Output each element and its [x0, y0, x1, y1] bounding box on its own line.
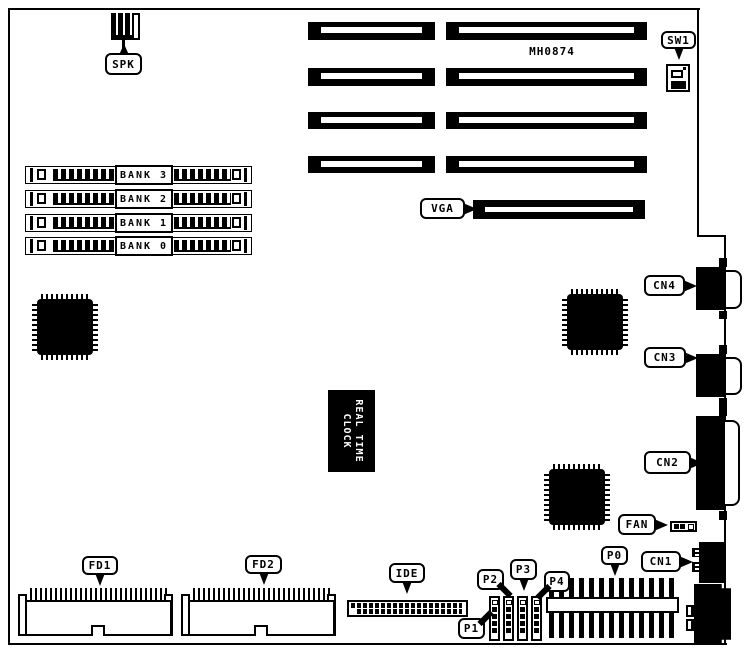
cn1-pin [692, 562, 699, 572]
jumper-cap [520, 621, 525, 626]
socket-latch-icon [37, 169, 46, 180]
bank-label: BANK 0 [115, 236, 173, 256]
bottom-edge-connector [694, 584, 731, 644]
vga-callout-label: VGA [431, 202, 454, 215]
spk-callout-label: SPK [112, 58, 135, 71]
ide-callout: IDE [389, 563, 425, 583]
speaker-header-pin [125, 13, 130, 35]
jumper-cap [492, 621, 497, 626]
p2-callout-label: P2 [483, 573, 498, 586]
motherboard-diagram: SPK MH0874 SW1 VGA BANK 3 BANK 2 [0, 0, 744, 651]
fan-pin [674, 524, 679, 529]
socket-pins [174, 169, 231, 181]
cn2-callout: CN2 [644, 451, 691, 474]
socket-latch-icon [37, 193, 46, 204]
jumper-open [492, 600, 498, 605]
edge-tab [719, 407, 727, 416]
fan-callout: FAN [618, 514, 656, 535]
rtc-line2: CLOCK [340, 390, 352, 472]
expansion-slot [446, 112, 647, 129]
fan-pin-open [688, 524, 694, 530]
fd1-callout-label: FD1 [89, 559, 112, 572]
ide-pin1-marker [351, 609, 355, 614]
socket-end-bar [30, 239, 33, 253]
expansion-slot [308, 22, 435, 40]
chip-body [549, 469, 605, 525]
ide-pin-row [351, 603, 462, 608]
socket-pins [53, 217, 114, 229]
connector-tab [686, 619, 697, 631]
sw1-switch-upper [671, 70, 683, 78]
fd2-callout: FD2 [245, 555, 282, 574]
ide-header [347, 600, 468, 617]
connector-tab [686, 605, 697, 617]
real-time-clock-block: REAL TIME CLOCK [328, 390, 375, 472]
simm-socket-bank2: BANK 2 [25, 190, 252, 208]
jumper-cap [534, 621, 539, 626]
simm-socket-bank0: BANK 0 [25, 237, 252, 255]
socket-end-bar [30, 192, 33, 206]
p0-callout: P0 [601, 546, 628, 565]
ide-pin-row [351, 609, 462, 614]
socket-pins [53, 240, 114, 252]
rtc-line1: REAL TIME [352, 390, 364, 472]
p0-power-connector-body [546, 597, 679, 613]
socket-pins [174, 193, 231, 205]
socket-pins [174, 240, 231, 252]
edge-tab [719, 398, 727, 407]
sw1-dip-switch-icon [666, 64, 690, 92]
p4-callout: P4 [544, 571, 570, 592]
simm-socket-bank3: BANK 3 [25, 166, 252, 184]
socket-end-bar [244, 168, 247, 182]
chip-body [37, 299, 93, 355]
jumper-open [534, 600, 540, 605]
p2-callout: P2 [477, 569, 504, 590]
socket-end-bar [244, 216, 247, 230]
qfp-chip [562, 289, 628, 355]
p1-callout: P1 [458, 618, 485, 639]
board-outline-top [8, 8, 700, 10]
jumper-block-p3 [517, 596, 528, 641]
socket-latch-icon [232, 217, 241, 228]
cn1-callout-label: CN1 [650, 555, 673, 568]
cn1-pin [692, 548, 699, 557]
jumper-cap [506, 607, 511, 612]
cn4-callout-label: CN4 [653, 279, 676, 292]
p0-callout-label: P0 [607, 549, 622, 562]
fd2-key-notch [254, 625, 268, 636]
expansion-slot [308, 156, 435, 173]
edge-tab [719, 511, 727, 520]
p3-callout: P3 [510, 559, 537, 580]
vga-callout: VGA [420, 198, 465, 219]
sw1-callout-label: SW1 [667, 34, 690, 47]
cn1-connector [699, 542, 726, 583]
bank-label: BANK 1 [115, 213, 173, 233]
cn4-callout: CN4 [644, 275, 685, 296]
expansion-slot [308, 112, 435, 129]
fan-connector [670, 521, 697, 532]
board-outline-left [8, 8, 10, 645]
jumper-cap [492, 607, 497, 612]
fd2-callout-label: FD2 [252, 558, 275, 571]
expansion-slot [446, 22, 647, 40]
jumper-block-p1 [489, 596, 500, 641]
jumper-cap [534, 628, 539, 633]
fan-pin [680, 524, 685, 529]
simm-socket-bank1: BANK 1 [25, 214, 252, 232]
socket-latch-icon [232, 169, 241, 180]
jumper-block-p2 [503, 596, 514, 641]
ide-callout-label: IDE [396, 567, 419, 580]
board-part-number: MH0874 [522, 45, 582, 58]
board-outline-step [697, 235, 726, 237]
socket-latch-icon [37, 217, 46, 228]
jumper-block-p4 [531, 596, 542, 641]
socket-end-bar [244, 192, 247, 206]
jumper-cap [506, 621, 511, 626]
board-outline-bottom [8, 643, 727, 645]
edge-tab [719, 345, 727, 354]
jumper-cap [492, 628, 497, 633]
jumper-cap [520, 614, 525, 619]
socket-end-bar [30, 216, 33, 230]
vga-slot [473, 200, 645, 219]
cn2-callout-label: CN2 [656, 456, 679, 469]
edge-tab [719, 258, 727, 267]
cn1-callout: CN1 [641, 551, 681, 572]
fd1-key-notch [91, 625, 105, 636]
cn4-connector [696, 267, 726, 310]
fd1-callout: FD1 [82, 556, 118, 575]
socket-pins [174, 217, 231, 229]
board-outline-right-upper [697, 8, 699, 237]
bank-label: BANK 2 [115, 189, 173, 209]
socket-end-bar [244, 239, 247, 253]
jumper-open [520, 600, 526, 605]
socket-pins [53, 169, 114, 181]
cn3-connector [696, 354, 726, 397]
qfp-chip [544, 464, 610, 530]
expansion-slot [308, 68, 435, 86]
cn3-callout: CN3 [644, 347, 686, 368]
jumper-cap [520, 607, 525, 612]
p3-callout-label: P3 [516, 563, 531, 576]
socket-pins [53, 193, 114, 205]
jumper-open [506, 600, 512, 605]
jumper-cap [506, 614, 511, 619]
qfp-chip [32, 294, 98, 360]
jumper-cap [534, 607, 539, 612]
speaker-header-open-pin [132, 13, 140, 40]
cn3-callout-label: CN3 [654, 351, 677, 364]
bank-label: BANK 3 [115, 165, 173, 185]
socket-latch-icon [232, 193, 241, 204]
p1-callout-label: P1 [464, 622, 479, 635]
expansion-slot [446, 156, 647, 173]
expansion-slot [446, 68, 647, 86]
jumper-cap [506, 628, 511, 633]
speaker-header-pin [111, 13, 116, 35]
sw1-callout: SW1 [661, 31, 696, 49]
chip-body [567, 294, 623, 350]
fan-callout-label: FAN [626, 518, 649, 531]
sw1-switch-dot [683, 67, 686, 70]
speaker-header-pin [118, 13, 123, 35]
spk-callout: SPK [105, 53, 142, 75]
sw1-switch-lower [671, 81, 686, 89]
rtc-label: REAL TIME CLOCK [340, 390, 364, 472]
socket-latch-icon [37, 240, 46, 251]
socket-end-bar [30, 168, 33, 182]
edge-tab [719, 311, 727, 319]
jumper-cap [534, 614, 539, 619]
p4-callout-label: P4 [549, 575, 564, 588]
socket-latch-icon [232, 240, 241, 251]
jumper-cap [520, 628, 525, 633]
